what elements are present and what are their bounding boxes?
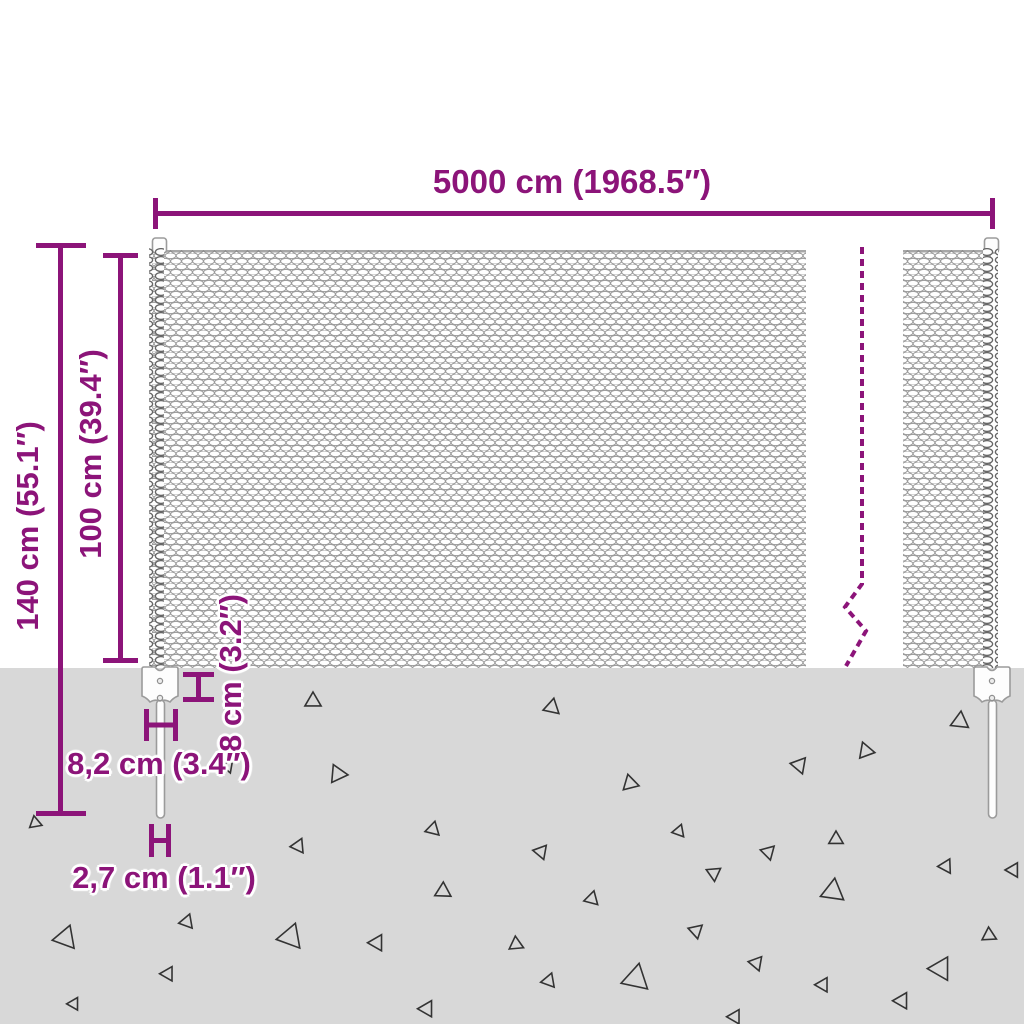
stone-triangle bbox=[160, 967, 179, 985]
stone-triangle bbox=[927, 957, 957, 986]
stone-triangle bbox=[418, 1001, 439, 1021]
stone-triangle bbox=[758, 843, 774, 860]
stone-triangle bbox=[747, 955, 762, 971]
right-post-coil-edge bbox=[983, 248, 998, 668]
right-post-underground bbox=[989, 700, 997, 818]
stone-triangle bbox=[508, 935, 523, 949]
stone-triangle bbox=[860, 742, 877, 760]
left-anchor-hole-bottom bbox=[157, 695, 162, 700]
stone-triangle bbox=[950, 710, 970, 727]
stone-triangle bbox=[368, 935, 389, 955]
anchor-height-bracket bbox=[183, 674, 214, 700]
fence-continuation-dashed-line bbox=[845, 247, 866, 666]
stones-layer bbox=[26, 692, 1018, 1024]
anchor-height-dimension-label: 8 cm (3.2″) bbox=[213, 594, 249, 752]
stone-triangle bbox=[688, 925, 705, 940]
anchor-width-dimension-label: 8,2 cm (3.4″) bbox=[67, 746, 251, 782]
stone-triangle bbox=[425, 819, 442, 835]
stone-triangle bbox=[543, 697, 562, 714]
left-post-coil-edge bbox=[149, 248, 164, 668]
stone-triangle bbox=[435, 882, 452, 897]
total-height-dimension-label: 140 cm (55.1″) bbox=[10, 421, 46, 631]
stone-triangle bbox=[727, 1010, 746, 1024]
stone-triangle bbox=[981, 927, 996, 940]
right-anchor-hole-bottom bbox=[989, 695, 994, 700]
stone-triangle bbox=[815, 978, 834, 996]
stone-triangle bbox=[584, 891, 603, 910]
stone-triangle bbox=[67, 998, 83, 1014]
stone-triangle bbox=[893, 993, 914, 1013]
post-diameter-bracket bbox=[151, 824, 169, 857]
width-dimension-line bbox=[155, 198, 993, 229]
stone-triangle bbox=[620, 772, 639, 789]
stone-triangle bbox=[332, 765, 349, 784]
stone-triangle bbox=[179, 914, 198, 933]
right-anchor-hole-top bbox=[989, 678, 994, 683]
stone-triangle bbox=[305, 692, 321, 706]
left-anchor-hole-top bbox=[157, 678, 162, 683]
fence-dimension-diagram: 5000 cm (1968.5″) 140 cm (55.1″) 100 cm … bbox=[0, 0, 1024, 1024]
stone-triangle bbox=[938, 856, 957, 874]
stone-triangle bbox=[50, 925, 74, 952]
stone-triangle bbox=[541, 973, 560, 992]
stone-triangle bbox=[789, 755, 806, 773]
mesh-panel-left bbox=[152, 250, 806, 668]
stone-triangle bbox=[533, 845, 551, 862]
stone-triangle bbox=[820, 876, 846, 899]
mesh-height-dimension-label: 100 cm (39.4″) bbox=[73, 349, 109, 559]
stone-triangle bbox=[289, 838, 303, 853]
stone-triangle bbox=[621, 961, 652, 989]
mesh-panel-right bbox=[903, 250, 991, 668]
stone-triangle bbox=[26, 816, 42, 833]
stone-triangle bbox=[274, 923, 300, 952]
stone-triangle bbox=[672, 822, 688, 837]
width-dimension-label: 5000 cm (1968.5″) bbox=[433, 163, 711, 201]
stone-triangle bbox=[1005, 863, 1017, 877]
post-diameter-dimension-label: 2,7 cm (1.1″) bbox=[72, 860, 256, 896]
stone-triangle bbox=[829, 831, 843, 843]
stone-triangle bbox=[706, 863, 724, 882]
